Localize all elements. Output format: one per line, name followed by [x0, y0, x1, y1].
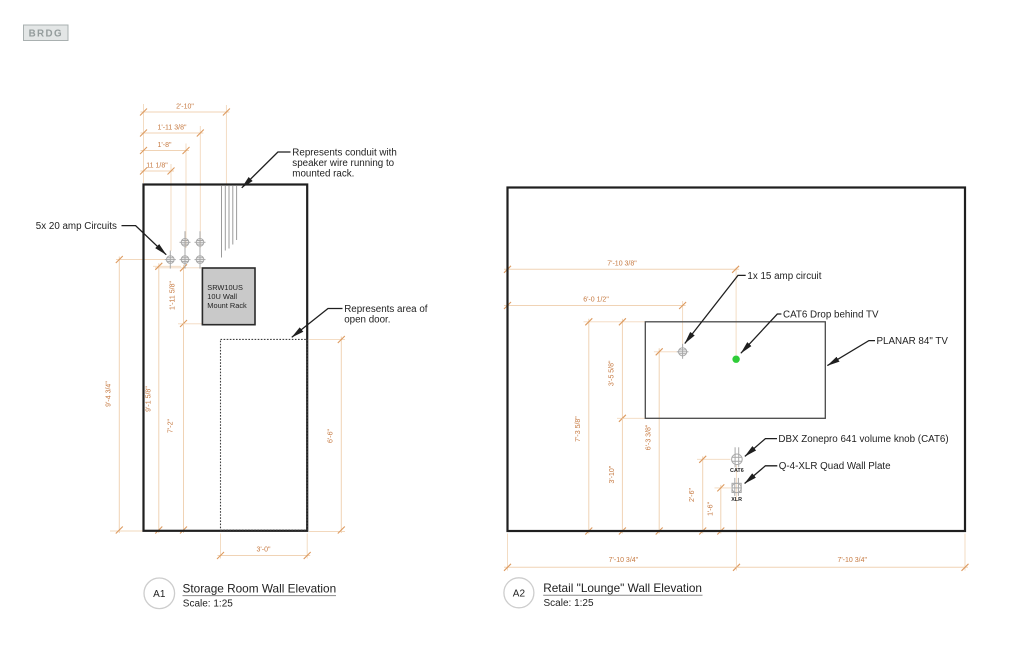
svg-text:3'-0": 3'-0": [257, 547, 271, 554]
svg-text:9'-1 5/8": 9'-1 5/8": [145, 386, 152, 412]
svg-text:6'-3 3/8": 6'-3 3/8": [646, 424, 653, 450]
svg-text:7'-10 3/4": 7'-10 3/4": [609, 557, 639, 564]
svg-text:mounted rack.: mounted rack.: [292, 169, 354, 180]
svg-text:XLR: XLR: [731, 497, 742, 503]
svg-text:3'-5 5/8": 3'-5 5/8": [609, 360, 616, 386]
svg-text:PLANAR 84" TV: PLANAR 84" TV: [877, 336, 949, 347]
svg-text:10U Wall: 10U Wall: [207, 292, 237, 301]
svg-text:Represents conduit with: Represents conduit with: [292, 147, 397, 158]
svg-text:Scale: 1:25: Scale: 1:25: [544, 598, 594, 609]
svg-text:1x 15 amp circuit: 1x 15 amp circuit: [747, 271, 821, 282]
svg-text:7'-10 3/8": 7'-10 3/8": [607, 261, 637, 268]
svg-text:A1: A1: [153, 589, 166, 600]
svg-text:5x 20 amp Circuits: 5x 20 amp Circuits: [36, 221, 117, 232]
svg-text:SRW10US: SRW10US: [207, 283, 243, 292]
svg-text:Scale: 1:25: Scale: 1:25: [183, 599, 233, 610]
svg-text:2'-6": 2'-6": [689, 488, 696, 502]
svg-text:Q-4-XLR Quad Wall Plate: Q-4-XLR Quad Wall Plate: [779, 461, 891, 472]
svg-text:DBX Zonepro 641 volume knob (C: DBX Zonepro 641 volume knob (CAT6): [778, 434, 948, 445]
svg-text:7'-10 3/4": 7'-10 3/4": [837, 557, 867, 564]
svg-text:9'-4 3/4": 9'-4 3/4": [106, 381, 113, 407]
svg-text:CAT6 Drop behind TV: CAT6 Drop behind TV: [783, 309, 879, 320]
svg-text:BRDG: BRDG: [29, 28, 63, 39]
svg-text:1'-8": 1'-8": [158, 142, 172, 149]
svg-text:open door.: open door.: [344, 315, 390, 326]
svg-text:11 1/8": 11 1/8": [146, 163, 168, 170]
svg-text:CAT6: CAT6: [730, 468, 744, 474]
svg-text:Retail "Lounge" Wall Elevation: Retail "Lounge" Wall Elevation: [543, 581, 702, 595]
svg-text:1'-11 5/8": 1'-11 5/8": [170, 280, 177, 310]
svg-text:6'-6": 6'-6": [327, 429, 334, 443]
svg-text:Storage Room Wall Elevation: Storage Room Wall Elevation: [183, 581, 337, 595]
svg-text:Represents area of: Represents area of: [344, 304, 428, 315]
svg-text:3'-10": 3'-10": [609, 465, 616, 483]
svg-text:Mount Rack: Mount Rack: [207, 301, 247, 310]
svg-text:6'-0 1/2": 6'-0 1/2": [583, 297, 609, 304]
svg-text:1'-6": 1'-6": [707, 501, 714, 515]
svg-text:A2: A2: [513, 589, 526, 600]
svg-text:1'-11 3/8": 1'-11 3/8": [158, 125, 188, 132]
svg-text:7'-2": 7'-2": [168, 419, 175, 433]
svg-text:speaker wire running to: speaker wire running to: [292, 158, 394, 169]
svg-text:2'-10": 2'-10": [176, 104, 194, 111]
svg-text:7'-3 5/8": 7'-3 5/8": [575, 416, 582, 442]
